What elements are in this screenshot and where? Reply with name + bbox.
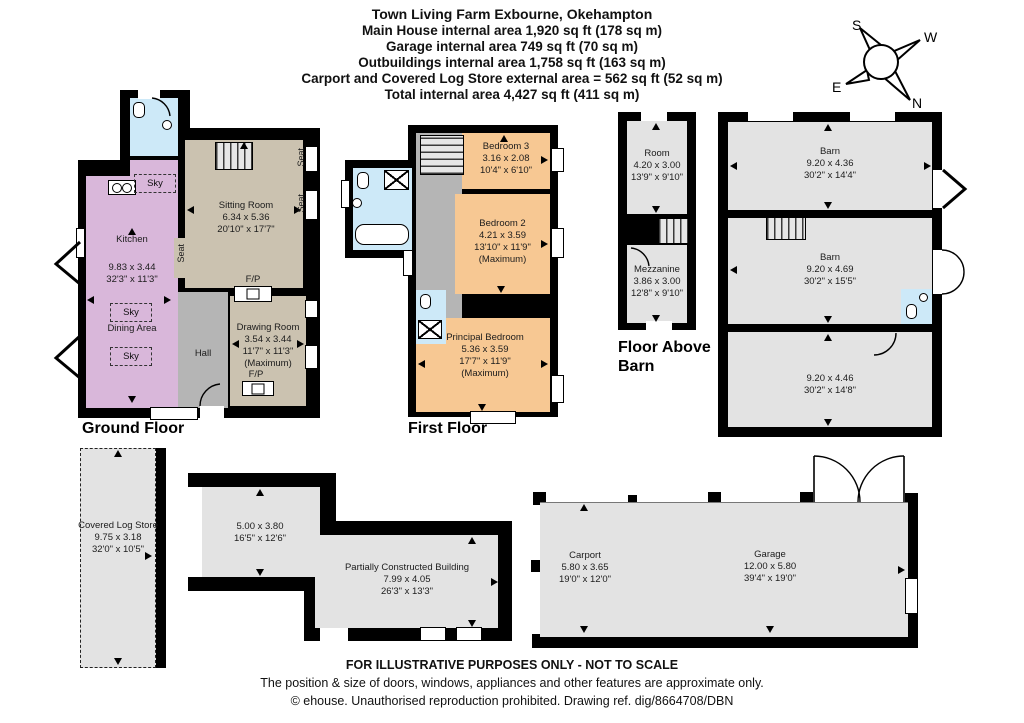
room-dim-imperial: 32'0" x 10'5" (92, 544, 144, 556)
room-name: Covered Log Store (78, 520, 158, 532)
garage-double-door (811, 452, 907, 504)
sink-icon (919, 293, 928, 302)
fireplace-icon (234, 286, 272, 302)
room-name: Mezzanine (634, 264, 680, 276)
room-dim-metric: 9.20 x 4.69 (806, 264, 853, 276)
wall (320, 521, 500, 535)
measure-arrow (824, 316, 832, 323)
window (646, 321, 672, 330)
room-dim-metric: 9.75 x 3.18 (94, 532, 141, 544)
room-dim-metric: 12.00 x 5.80 (744, 561, 796, 573)
skylight-box: Sky (110, 303, 152, 322)
area-line-outbuildings: Outbuildings internal area 1,758 sq ft (… (0, 55, 1024, 71)
hall-label: Hall (178, 348, 228, 360)
area-line-total: Total internal area 4,427 sq ft (411 sq … (0, 87, 1024, 103)
room-name: Carport (569, 550, 601, 562)
floor-plan-page: Town Living Farm Exbourne, Okehampton Ma… (0, 0, 1024, 723)
measure-arrow (580, 626, 588, 633)
toilet-icon (133, 102, 145, 118)
seat-label: Seat (296, 194, 306, 213)
drawing-room-label: Drawing Room 3.54 x 3.44 11'7" x 11'3" (… (226, 322, 310, 370)
window (551, 375, 564, 403)
room-dim-metric: 7.99 x 4.05 (383, 574, 430, 586)
window (305, 146, 318, 172)
measure-arrow (491, 578, 498, 586)
room-name: Drawing Room (237, 322, 300, 334)
measure-arrow (418, 360, 425, 368)
measure-arrow (256, 489, 264, 496)
room-dim-imperial: 10'4" x 6'10" (480, 165, 532, 177)
room-dim-metric: 9.20 x 4.36 (806, 158, 853, 170)
bathtub-icon (355, 224, 409, 245)
room-dim-metric: 5.00 x 3.80 (236, 521, 283, 533)
skylight-label: Sky (147, 178, 163, 189)
door-arc (198, 382, 222, 406)
room-dim-metric: 6.34 x 5.36 (222, 212, 269, 224)
room-name: Barn (820, 252, 840, 264)
measure-arrow (652, 206, 660, 213)
measure-arrow (580, 504, 588, 511)
room-name: Hall (195, 348, 211, 360)
room-kitchen-dining (86, 176, 178, 408)
dining-area-label: Dining Area (86, 323, 178, 335)
measure-arrow (766, 626, 774, 633)
measure-arrow (87, 296, 94, 304)
staircase (658, 218, 689, 244)
room-dim-imperial: 30'2" x 15'5" (804, 276, 856, 288)
measure-arrow (240, 142, 248, 149)
staircase (766, 217, 806, 240)
room-dim-imperial: 12'8" x 9'10" (631, 288, 683, 300)
measure-arrow (478, 404, 486, 411)
window (641, 112, 667, 121)
skylight-label: Sky (123, 351, 139, 362)
toilet-icon (357, 172, 369, 189)
door (420, 627, 446, 641)
opening-break-icon (941, 168, 967, 210)
carport-label: Carport 5.80 x 3.65 19'0" x 12'0" (545, 550, 625, 586)
skylight-label: Sky (123, 307, 139, 318)
window (748, 112, 793, 121)
measure-arrow (824, 202, 832, 209)
window (551, 228, 564, 258)
area-line-garage: Garage internal area 749 sq ft (70 sq m) (0, 39, 1024, 55)
measure-arrow (652, 123, 660, 130)
fireplace-label: F/P (230, 274, 276, 286)
hob-icon (108, 180, 136, 195)
room-dim-metric: 9.20 x 4.46 (806, 373, 853, 385)
skylight-box: Sky (110, 347, 152, 366)
fireplace-icon (242, 381, 274, 396)
window (905, 578, 918, 614)
ground-floor-title: Ground Floor (82, 420, 184, 438)
room-dim-imperial: 26'3" x 13'3" (381, 586, 433, 598)
footer-approximate-note: The position & size of doors, windows, a… (0, 676, 1024, 690)
barn-open-label: 9.20 x 4.46 30'2" x 14'8" (780, 373, 880, 397)
measure-arrow (730, 162, 737, 170)
measure-arrow (924, 162, 931, 170)
room-name: Barn (820, 146, 840, 158)
measure-arrow (824, 419, 832, 426)
measure-arrow (164, 296, 171, 304)
door-arc (872, 331, 898, 357)
room-dim-metric: 3.86 x 3.00 (633, 276, 680, 288)
wall (498, 521, 512, 641)
kitchen-dims: 9.83 x 3.44 32'3" x 11'3" (86, 262, 178, 286)
barn-lower-label: Barn 9.20 x 4.69 30'2" x 15'5" (780, 252, 880, 288)
measure-arrow (652, 315, 660, 322)
room-dim-imperial: 20'10" x 17'7" (217, 224, 274, 236)
room-dim-imperial: 13'9" x 9'10" (631, 172, 683, 184)
room-name: Room (644, 148, 669, 160)
floor-above-barn-title: Floor Above Barn (618, 338, 728, 376)
room-name: Bedroom 3 (483, 141, 529, 153)
skylight-box: Sky (134, 174, 176, 193)
window (305, 300, 318, 318)
room-dim-imperial: 39'4" x 19'0" (744, 573, 796, 585)
partial-left-label: 5.00 x 3.80 16'5" x 12'6" (210, 521, 310, 545)
title-block: Town Living Farm Exbourne, Okehampton Ma… (0, 6, 1024, 103)
double-door-arc (940, 248, 970, 296)
room-dim-imperial: 11'7" x 11'3" (243, 346, 294, 358)
barn-upper-label: Barn 9.20 x 4.36 30'2" x 14'4" (780, 146, 880, 182)
room-dim-metric: 5.80 x 3.65 (561, 562, 608, 574)
room-dim-metric: 9.83 x 3.44 (108, 262, 155, 274)
seat-label: Seat (176, 244, 186, 263)
bedroom2-label: Bedroom 2 4.21 x 3.59 13'10" x 11'9" (Ma… (455, 218, 550, 266)
room-dim-note: (Maximum) (461, 368, 509, 380)
footer-copyright: © ehouse. Unauthorised reproduction proh… (0, 694, 1024, 708)
room-dim-note: (Maximum) (244, 358, 292, 370)
fireplace-label: F/P (233, 369, 279, 381)
window (403, 250, 413, 276)
room-dim-imperial: 32'3" x 11'3" (106, 274, 157, 286)
window (305, 190, 318, 220)
room-name: Partially Constructed Building (345, 562, 469, 574)
room-dim-note: (Maximum) (479, 254, 527, 266)
garage-label: Garage 12.00 x 5.80 39'4" x 19'0" (710, 549, 830, 585)
measure-arrow (824, 124, 832, 131)
toilet-icon (906, 304, 917, 319)
room-dim-metric: 5.36 x 3.59 (461, 344, 508, 356)
wall (188, 577, 320, 591)
area-line-main-house: Main House internal area 1,920 sq ft (17… (0, 23, 1024, 39)
room-dim-imperial: 16'5" x 12'6" (234, 533, 286, 545)
sink-icon (352, 198, 362, 208)
principal-bedroom-label: Principal Bedroom 5.36 x 3.59 17'7" x 11… (425, 332, 545, 380)
fp-text: F/P (246, 274, 261, 286)
room-dim-imperial: 30'2" x 14'8" (804, 385, 856, 397)
page-title: Town Living Farm Exbourne, Okehampton (0, 6, 1024, 23)
room-dim-imperial: 30'2" x 14'4" (804, 170, 856, 182)
first-floor-title: First Floor (408, 420, 487, 438)
room-name: Sitting Room (219, 200, 273, 212)
window (341, 180, 350, 208)
opening-break-icon (54, 240, 82, 288)
kitchen-label: Kitchen (86, 234, 178, 246)
measure-arrow (898, 566, 905, 574)
room-dim-metric: 4.20 x 3.00 (633, 160, 680, 172)
measure-arrow (256, 569, 264, 576)
shower-icon (384, 170, 409, 190)
fp-text: F/P (249, 369, 264, 381)
room-name: Garage (754, 549, 786, 561)
seat-label: Seat (296, 148, 306, 167)
area-line-carport: Carport and Covered Log Store external a… (0, 71, 1024, 87)
room-dim-metric: 3.54 x 3.44 (244, 334, 291, 346)
bedroom3-label: Bedroom 3 3.16 x 2.08 10'4" x 6'10" (458, 141, 554, 177)
partially-constructed-label: Partially Constructed Building 7.99 x 4.… (327, 562, 487, 598)
measure-arrow (468, 620, 476, 627)
room-dim-imperial: 19'0" x 12'0" (559, 574, 611, 586)
footer-disclaimer: FOR ILLUSTRATIVE PURPOSES ONLY - NOT TO … (0, 658, 1024, 672)
measure-arrow (468, 537, 476, 544)
window (850, 112, 895, 121)
room-dim-imperial: 13'10" x 11'9" (474, 242, 531, 254)
room-name: Dining Area (107, 323, 156, 335)
mezzanine-label: Mezzanine 3.86 x 3.00 12'8" x 9'10" (621, 264, 693, 300)
bay-window (150, 407, 198, 420)
measure-arrow (114, 450, 122, 457)
measure-arrow (497, 286, 505, 293)
room-dim-metric: 3.16 x 2.08 (482, 153, 529, 165)
measure-arrow (730, 266, 737, 274)
measure-arrow (128, 396, 136, 403)
sitting-room-label: Sitting Room 6.34 x 5.36 20'10" x 17'7" (190, 200, 302, 236)
room-name: Kitchen (116, 234, 148, 246)
barn-room-label: Room 4.20 x 3.00 13'9" x 9'10" (623, 148, 691, 184)
room-dim-imperial: 17'7" x 11'9" (459, 356, 510, 368)
door (456, 627, 482, 641)
room-name: Principal Bedroom (446, 332, 524, 344)
room-name: Bedroom 2 (479, 218, 525, 230)
wall (188, 473, 336, 487)
door-opening (200, 406, 224, 418)
opening-break-icon (54, 334, 82, 382)
log-store-label: Covered Log Store 9.75 x 3.18 32'0" x 10… (78, 520, 158, 556)
toilet-icon (420, 294, 431, 309)
sink-icon (162, 120, 172, 130)
room-dim-metric: 4.21 x 3.59 (479, 230, 526, 242)
measure-arrow (824, 334, 832, 341)
